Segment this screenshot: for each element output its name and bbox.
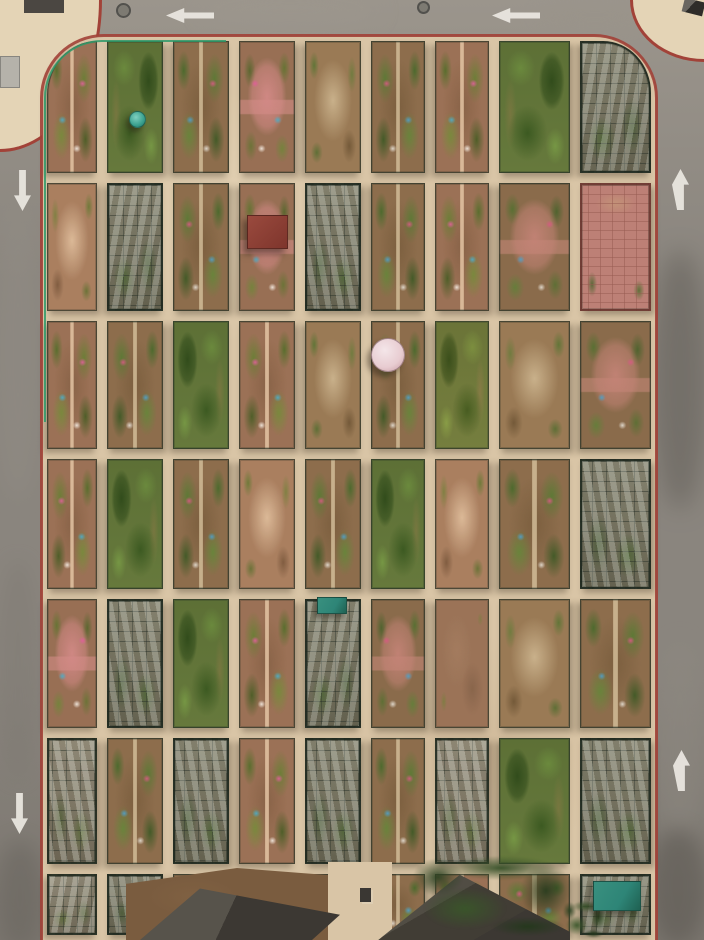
garden-plot: [580, 738, 651, 864]
garden-plot: [499, 738, 570, 864]
garden-plot: [371, 41, 425, 173]
garden-plot: [305, 459, 361, 589]
garden-plot: [580, 321, 651, 449]
garden-plot: [435, 321, 489, 449]
garden-plot: [435, 459, 489, 589]
garden-plot: [239, 599, 295, 728]
garden-plot: [305, 874, 361, 935]
garden-plot: [173, 459, 229, 589]
garden-plot: [107, 599, 163, 728]
garden-plot: [239, 738, 295, 864]
garden-plot: [47, 321, 97, 449]
garden-plot: [580, 183, 651, 311]
garden-plot: [47, 874, 97, 935]
road-patch: [656, 640, 704, 840]
garden-plot: [435, 874, 489, 935]
garden-plot: [173, 41, 229, 173]
garden-plot: [173, 321, 229, 449]
garden-plot: [107, 874, 163, 935]
road-patch: [0, 560, 40, 780]
garden-plot: [47, 738, 97, 864]
garden-plot: [239, 41, 295, 173]
garden-plot: [435, 183, 489, 311]
garden-plot: [371, 599, 425, 728]
garden-plot: [239, 459, 295, 589]
garden-plot: [107, 738, 163, 864]
garden-plot: [371, 459, 425, 589]
garden-plot: [305, 738, 361, 864]
road-patch: [648, 828, 704, 940]
garden-plot: [107, 321, 163, 449]
garden-plot: [107, 183, 163, 311]
garden-plot: [173, 183, 229, 311]
road-patch: [0, 840, 44, 940]
garden-plot: [47, 183, 97, 311]
garden-plot: [371, 321, 425, 449]
garden-plot: [499, 321, 570, 449]
garden-plot: [499, 459, 570, 589]
garden-plot: [371, 183, 425, 311]
garden-plot: [173, 874, 229, 935]
garden-plot: [305, 41, 361, 173]
garden-plot: [499, 41, 570, 173]
garden-plot: [580, 41, 651, 173]
manhole-cover: [417, 1, 430, 14]
road-patch: [200, 0, 380, 28]
garden-plot: [305, 599, 361, 728]
garden-plot: [305, 321, 361, 449]
garden-plot: [435, 738, 489, 864]
garden-plot: [239, 321, 295, 449]
garden-plot: [435, 41, 489, 173]
garden-plot: [371, 874, 425, 935]
garden-plot: [107, 41, 163, 173]
garden-plot: [47, 459, 97, 589]
manhole-cover: [116, 3, 131, 18]
road-patch: [652, 250, 704, 510]
aerial-photo-scene: [0, 0, 704, 940]
garden-plot: [580, 874, 651, 935]
garden-plot: [305, 183, 361, 311]
garden-plot: [239, 874, 295, 935]
garden-plot: [107, 459, 163, 589]
garden-plot: [371, 738, 425, 864]
building-fragment: [24, 0, 64, 13]
garden-plot: [47, 41, 97, 173]
garden-plot: [173, 599, 229, 728]
road-patch: [0, 200, 42, 500]
utility-box: [0, 56, 20, 88]
garden-plot: [499, 183, 570, 311]
garden-plot: [435, 599, 489, 728]
garden-plot: [580, 599, 651, 728]
garden-plot: [499, 599, 570, 728]
garden-plot: [239, 183, 295, 311]
garden-plot: [47, 599, 97, 728]
garden-plot: [580, 459, 651, 589]
garden-plot: [173, 738, 229, 864]
garden-plot: [499, 874, 570, 935]
